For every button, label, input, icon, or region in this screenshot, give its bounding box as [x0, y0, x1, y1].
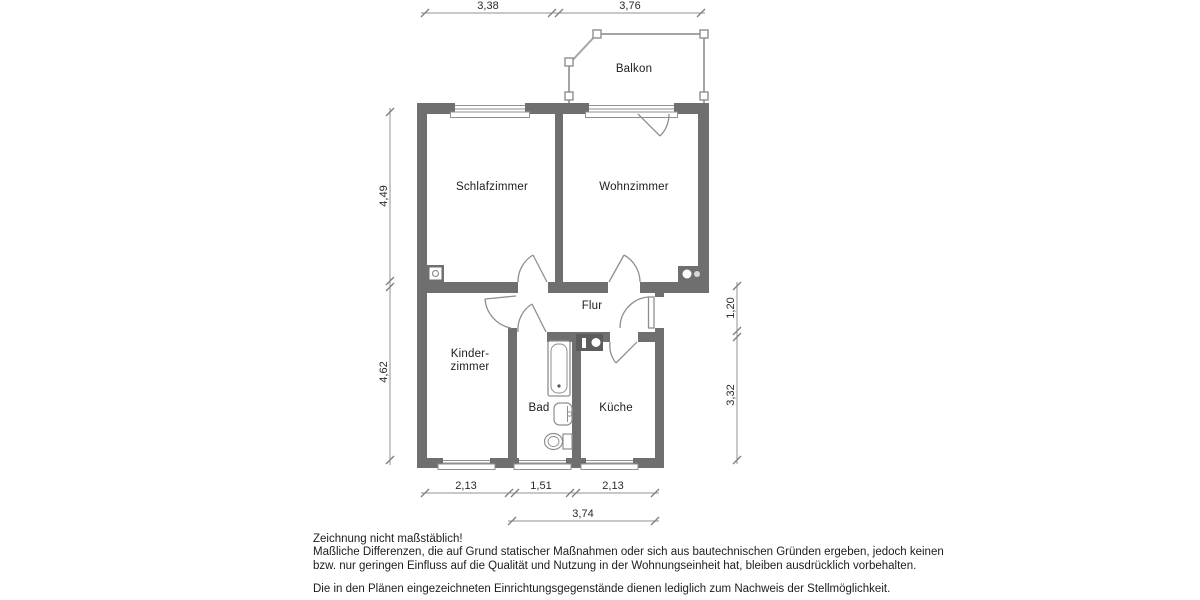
disclaimer-line-4: Die in den Plänen eingezeichneten Einric… — [313, 583, 890, 596]
shaft-wohnzimmer-icon — [678, 266, 703, 282]
floor-plan-page: Balkon Schlafzimmer Wohnzimmer Flur Kind… — [0, 0, 1200, 600]
room-label-wohnzimmer: Wohnzimmer — [599, 181, 669, 193]
disclaimer-line-1: Zeichnung nicht maßstäblich! — [313, 533, 944, 546]
window-bad — [514, 458, 571, 470]
bathtub-icon — [548, 341, 570, 396]
dim-top-2: 3,76 — [619, 0, 640, 12]
dim-bottom-3: 2,13 — [602, 480, 623, 492]
washbasin-icon — [554, 403, 572, 425]
dim-right-2: 3,32 — [725, 384, 737, 405]
window-schlafzimmer — [451, 103, 530, 118]
dim-bottom-1: 2,13 — [455, 480, 476, 492]
furnishing-note: Die in den Plänen eingezeichneten Einric… — [313, 583, 890, 596]
disclaimer-line-3: bzw. nur geringen Einfluss auf die Quali… — [313, 560, 944, 573]
shaft-schlafzimmer-icon — [427, 265, 444, 282]
room-label-flur: Flur — [582, 300, 603, 312]
room-label-kinderzimmer-line2: zimmer — [451, 361, 490, 373]
room-label-kueche: Küche — [599, 402, 633, 414]
door-wohnzimmer — [609, 255, 640, 282]
door-kueche — [610, 342, 637, 363]
dim-bottom-2: 1,51 — [530, 480, 551, 492]
door-bad — [518, 304, 546, 332]
window-kueche — [581, 458, 638, 470]
disclaimer-line-2: Maßliche Differenzen, die auf Grund stat… — [313, 546, 944, 559]
dim-left-1: 4,49 — [378, 185, 390, 206]
window-wohnzimmer-balcony — [586, 103, 678, 118]
dim-bottom-total: 3,74 — [572, 508, 593, 520]
disclaimer-block: Zeichnung nicht maßstäblich! Maßliche Di… — [313, 533, 944, 573]
dim-top-1: 3,38 — [477, 0, 498, 12]
kitchen-sink-icon — [576, 334, 603, 351]
door-schlafzimmer — [518, 255, 547, 282]
room-label-kinderzimmer-line1: Kinder- — [451, 348, 489, 360]
toilet-icon — [545, 434, 573, 450]
room-label-schlafzimmer: Schlafzimmer — [456, 181, 528, 193]
room-label-bad: Bad — [528, 402, 549, 414]
dim-left-2: 4,62 — [378, 361, 390, 382]
room-label-balkon: Balkon — [616, 63, 652, 75]
dim-right-1: 1,20 — [725, 297, 737, 318]
window-kinderzimmer — [438, 458, 495, 470]
door-entrance — [620, 297, 654, 328]
